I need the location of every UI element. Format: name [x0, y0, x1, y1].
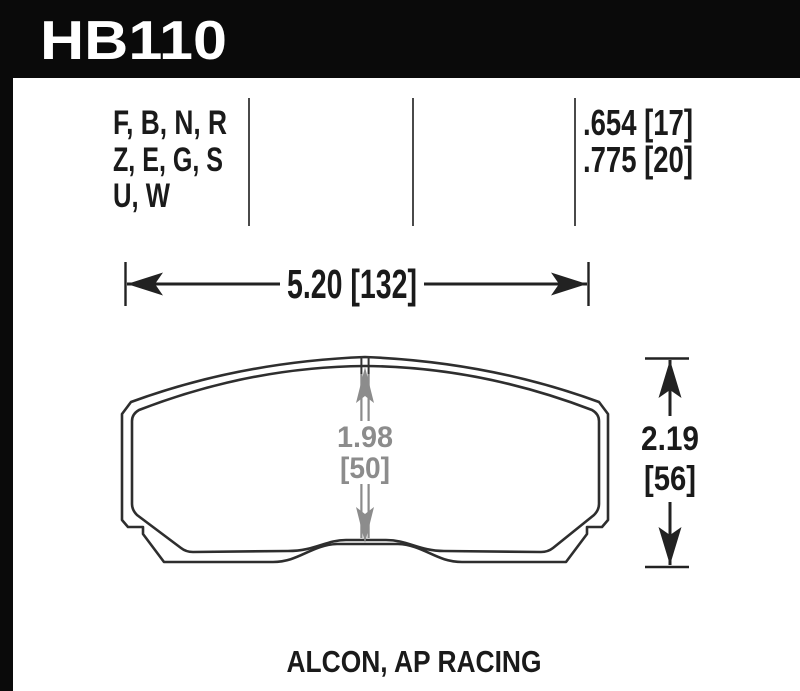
- height-dim-label-in: 2.19: [641, 420, 699, 458]
- height-dim-label-mm: [56]: [644, 460, 696, 498]
- compound-line-1: F, B, N, R: [113, 104, 227, 142]
- part-number: HB110: [40, 9, 227, 71]
- width-dim-label: 5.20 [132]: [287, 261, 417, 307]
- thickness-value-2: .775 [20]: [583, 139, 693, 180]
- left-border-strip: [0, 0, 13, 691]
- thickness-value-1: .654 [17]: [583, 102, 693, 143]
- compound-line-3: U, W: [113, 177, 171, 215]
- caliper-caption: ALCON, AP RACING: [287, 644, 542, 679]
- pad-height-label-mm: [50]: [340, 452, 390, 485]
- compound-line-2: Z, E, G, S: [113, 141, 223, 179]
- brake-pad-spec-sheet: HB110 F, B, N, R Z, E, G, S U, W .654 [1…: [0, 0, 800, 691]
- pad-height-label-in: 1.98: [337, 421, 393, 454]
- diagram-canvas: HB110 F, B, N, R Z, E, G, S U, W .654 [1…: [0, 0, 800, 691]
